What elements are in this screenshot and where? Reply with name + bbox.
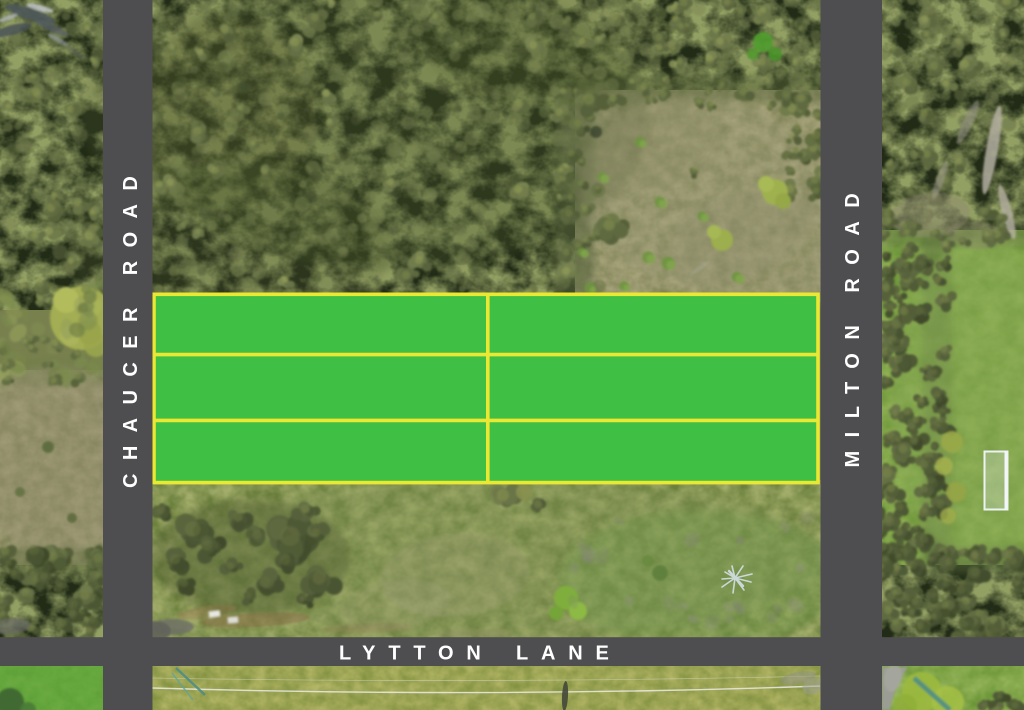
svg-text:LYTTON LANE: LYTTON LANE xyxy=(339,642,622,664)
svg-text:CHAUCER ROAD: CHAUCER ROAD xyxy=(120,163,142,488)
svg-text:MILTON ROAD: MILTON ROAD xyxy=(842,180,864,468)
